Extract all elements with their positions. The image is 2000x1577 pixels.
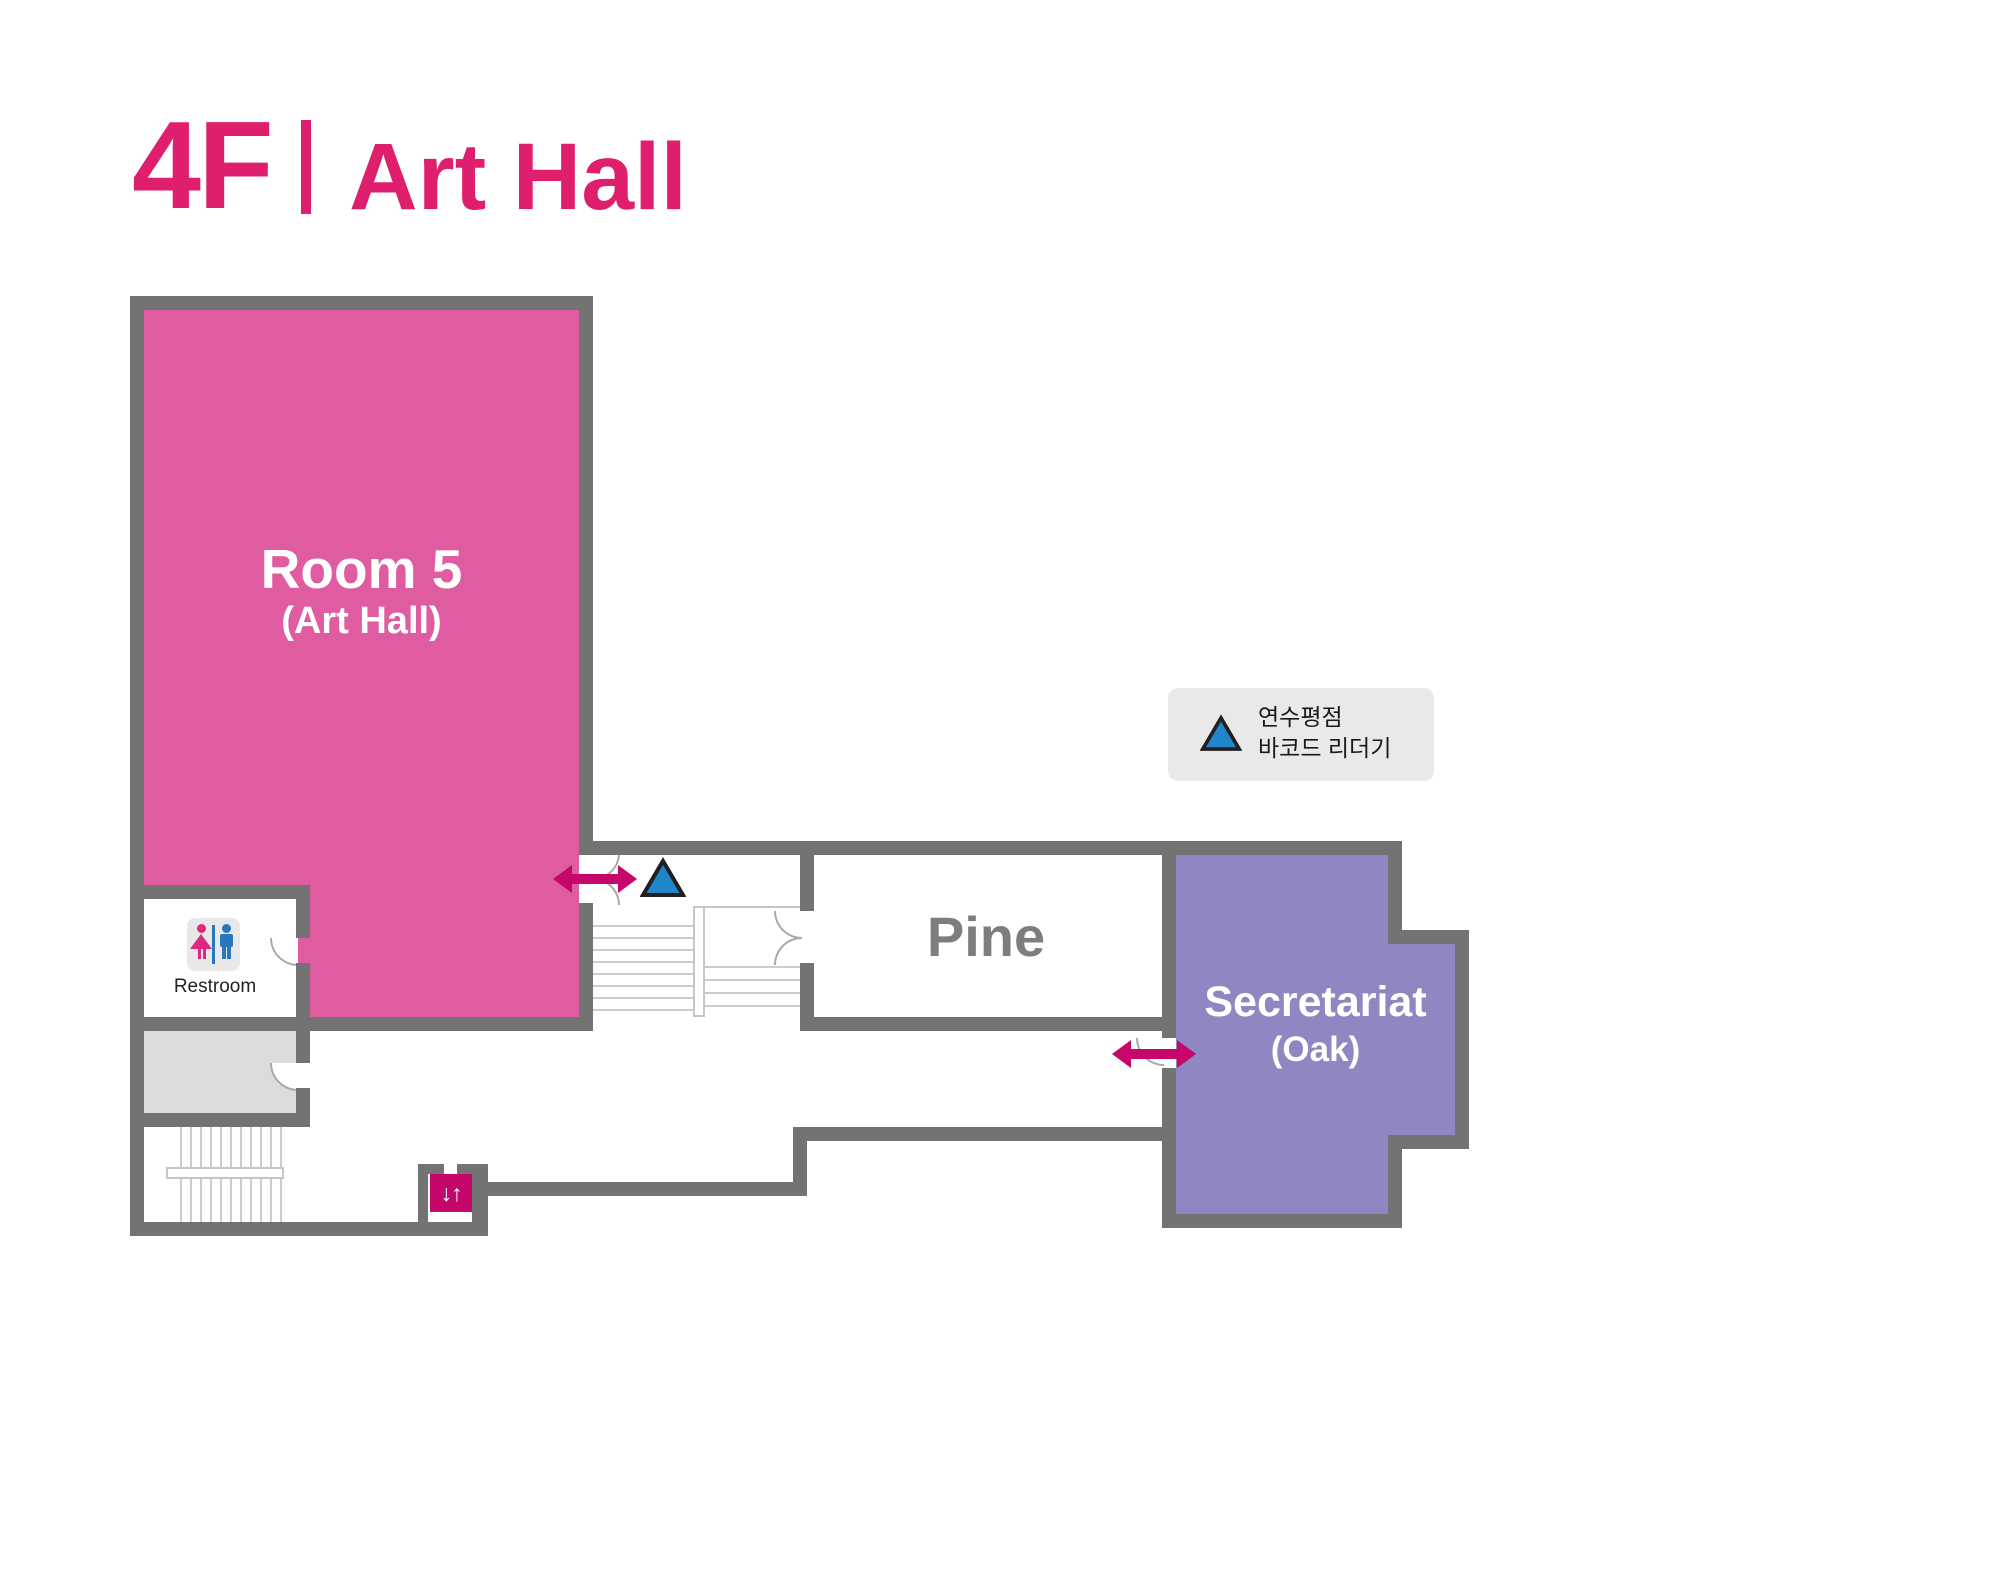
wall-segment	[472, 1182, 807, 1196]
wall-segment	[579, 296, 593, 853]
room5-entrance-arrow-icon	[553, 864, 637, 894]
legend-text: 연수평점 바코드 리더기	[1258, 702, 1391, 764]
secretariat-entrance-arrow-icon	[1112, 1039, 1196, 1069]
pine-label: Pine	[814, 900, 1158, 972]
restroom-divider	[212, 925, 215, 964]
elevator-shaft-wall	[472, 1164, 488, 1236]
legend-line-1: 연수평점	[1258, 702, 1391, 733]
wall-segment	[296, 963, 310, 1063]
wall-segment	[130, 1113, 310, 1127]
wall-segment	[130, 296, 593, 310]
stair-landing	[166, 1167, 284, 1179]
floor-plan-4f: 4F Art Hall	[0, 0, 2000, 1577]
room5-name: Room 5	[261, 539, 463, 600]
wall-segment	[1162, 1068, 1176, 1228]
wall-segment	[130, 1017, 593, 1031]
title-divider	[301, 120, 311, 214]
wall-segment	[1388, 1135, 1402, 1228]
wall-segment	[793, 1127, 1176, 1141]
room5-label: Room 5 (Art Hall)	[144, 536, 579, 648]
wall-segment	[296, 885, 310, 938]
page-title: Art Hall	[349, 130, 687, 225]
wall-segment	[1162, 1214, 1402, 1228]
male-icon	[222, 924, 231, 933]
wall-segment	[579, 903, 593, 1031]
restroom-label: Restroom	[155, 976, 275, 998]
legend-line-2: 바코드 리더기	[1258, 733, 1391, 764]
barcode-reader-marker-icon	[640, 857, 686, 899]
wall-segment	[130, 296, 144, 1236]
female-icon	[197, 924, 206, 933]
wall-segment	[1455, 930, 1469, 1149]
wall-segment	[800, 1017, 1176, 1031]
legend-triangle-icon	[1200, 714, 1242, 753]
stair-divider	[693, 906, 705, 1017]
secretariat-label: Secretariat (Oak)	[1176, 970, 1455, 1080]
pine-name: Pine	[927, 904, 1045, 969]
elevator-icon: ↓↑	[430, 1174, 472, 1212]
wall-segment	[800, 841, 814, 911]
restroom-icon	[187, 918, 240, 971]
wall-segment	[130, 885, 310, 899]
wall-segment	[130, 1222, 488, 1236]
room5-subtitle: (Art Hall)	[281, 599, 441, 645]
secretariat-name: Secretariat	[1204, 978, 1426, 1027]
wall-segment	[1162, 841, 1176, 1038]
pine-door-upper-leaf	[774, 911, 802, 939]
elevator-shaft-wall	[418, 1164, 444, 1174]
pine-door-lower-leaf	[774, 937, 802, 965]
elevator-shaft-wall	[418, 1164, 428, 1236]
wall-segment	[1388, 841, 1402, 944]
floor-number: 4F	[132, 104, 271, 228]
wall-segment	[579, 841, 1402, 855]
secretariat-subtitle: (Oak)	[1271, 1027, 1360, 1073]
elevator-arrows-icon: ↓↑	[441, 1180, 462, 1207]
legend: 연수평점 바코드 리더기	[1168, 688, 1434, 781]
